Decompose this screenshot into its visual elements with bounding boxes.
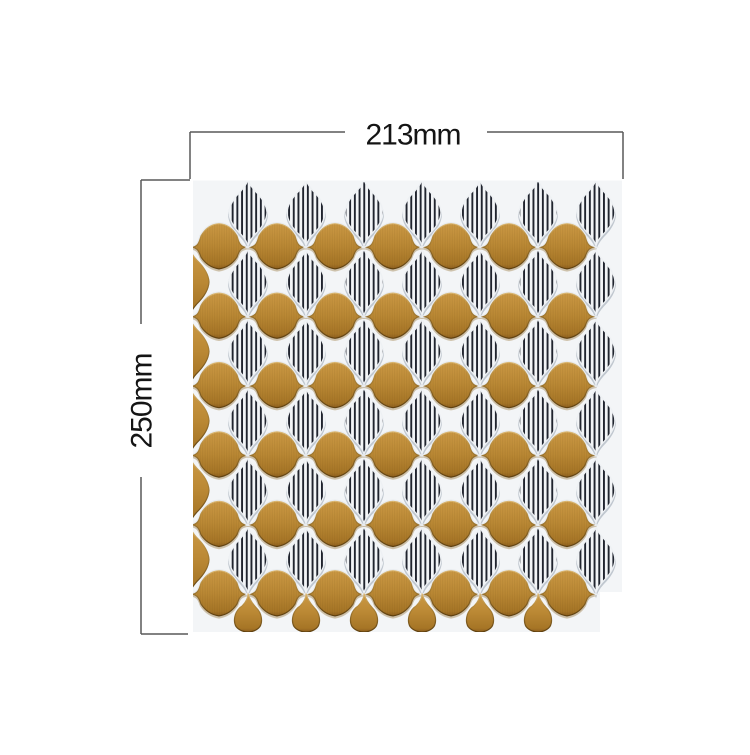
svg-text:250mm: 250mm	[126, 353, 159, 448]
svg-text:213mm: 213mm	[365, 119, 460, 152]
